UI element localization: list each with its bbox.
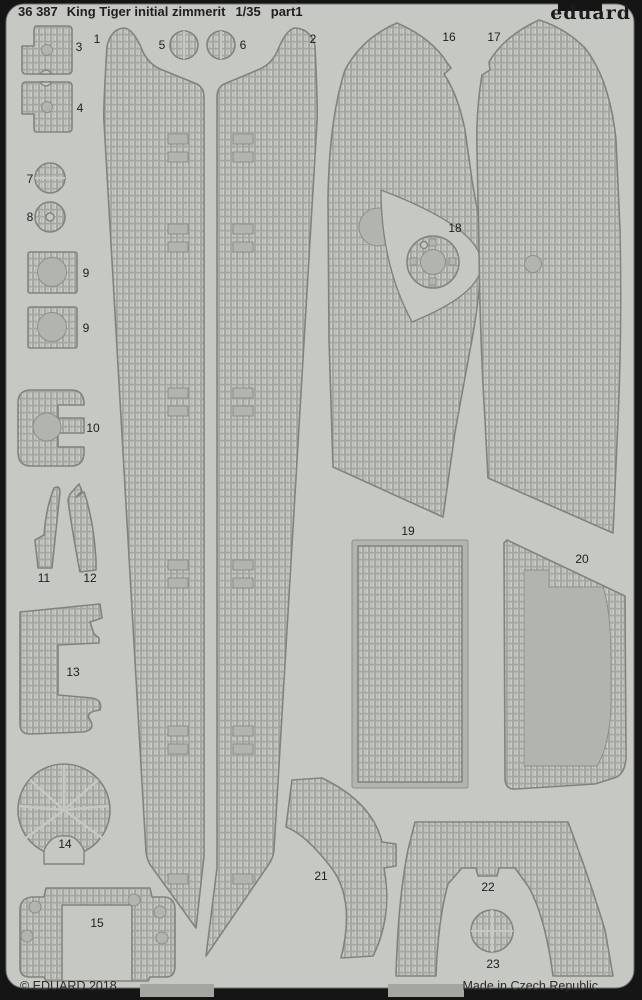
part-17 [477,20,621,533]
part-label-17: 17 [487,30,501,44]
part-9b [28,307,77,348]
part-label-10: 10 [86,421,100,435]
part-label-21: 21 [314,869,328,883]
part-9a-disc [38,258,67,287]
part-18 [407,236,459,288]
part-15-rivet [29,901,41,913]
part-5 [170,31,198,59]
part-label-3: 3 [76,40,83,54]
scale: 1/35 [235,4,260,19]
part-18-notch [449,258,456,265]
part-label-19: 19 [401,524,415,538]
eduard-logo: eduard [550,2,631,24]
part-label-9b: 9 [83,321,90,335]
part-number: part1 [271,4,303,19]
part-15-rivet [21,930,33,942]
part-18-notch [429,278,436,285]
copyright-text: © EDUARD 2018 [20,979,117,993]
part-9b-disc [38,313,67,342]
part-17-shape [477,20,621,533]
part-8 [35,202,65,232]
catalog-number: 36 387 [18,4,58,19]
part-15-rivet [154,906,166,918]
part-label-16: 16 [442,30,456,44]
part-label-4: 4 [77,101,84,115]
part-label-2: 2 [310,32,317,46]
part-label-23: 23 [486,957,500,971]
part-10 [18,390,84,466]
part-20-plain-area [524,570,611,766]
part-18-center [421,250,446,275]
part-label-13: 13 [66,665,80,679]
fret-image: 36 387King Tiger initial zimmerit1/35par… [0,0,642,1000]
part-4-hole [42,102,53,113]
part-label-5: 5 [159,38,166,52]
photo-etch-fret-photo: 36 387King Tiger initial zimmerit1/35par… [0,0,642,1000]
part-label-6: 6 [240,38,247,52]
part-label-15: 15 [90,916,104,930]
part-label-18: 18 [448,221,462,235]
made-in-text: Made in Czech Republic [463,979,599,993]
part-17-hole [525,256,542,273]
part-label-7: 7 [27,172,34,186]
part-label-20: 20 [575,552,589,566]
part-18-hole [421,242,428,249]
part-6 [207,31,235,59]
part-8-hole [46,213,54,221]
part-15-rivet [156,932,168,944]
sheet-bottom-tab [140,984,214,997]
part-18-notch [429,239,436,246]
part-9a [28,252,77,293]
part-7 [35,163,65,193]
part-18-notch [410,258,417,265]
part-19-shape [358,546,462,782]
part-label-22: 22 [481,880,495,894]
part-3-hole [42,45,53,56]
part-10-disc [33,413,61,441]
part-label-12: 12 [83,571,97,585]
part-19 [352,540,468,788]
part-15-rivet [128,894,140,906]
part-label-9a: 9 [83,266,90,280]
part-label-1: 1 [94,32,101,46]
part-23 [471,910,513,952]
part-label-8: 8 [27,210,34,224]
part-label-11: 11 [38,571,51,585]
product-title: King Tiger initial zimmerit [67,4,226,19]
part-label-14: 14 [58,837,72,851]
sheet-bottom-tab [388,984,464,997]
